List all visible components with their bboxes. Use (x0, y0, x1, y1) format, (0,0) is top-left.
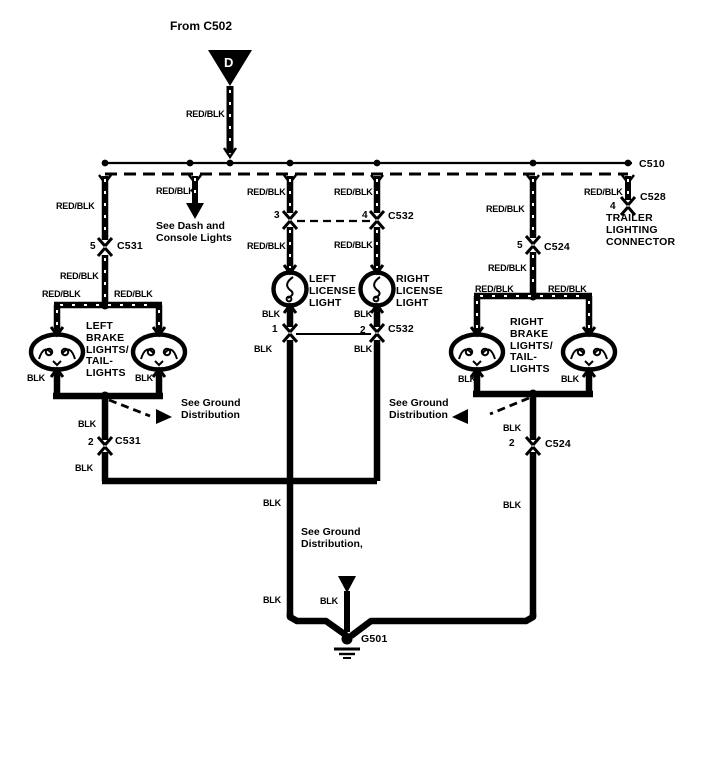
pin-c532-2: 2 (360, 325, 366, 337)
ground-feed-arrow-icon (338, 576, 356, 593)
left-license-bulb-icon (274, 265, 307, 313)
wire-label-blk: BLK (503, 500, 521, 510)
pin-c524-top: 5 (517, 240, 523, 252)
feed-wire-red-blk (224, 86, 236, 157)
wire-label-red-blk: RED/BLK (488, 263, 527, 273)
connector-label-g501: G501 (361, 633, 388, 645)
wire-label-red-blk: RED/BLK (247, 241, 286, 251)
wire-label-red-blk: RED/BLK (486, 204, 525, 214)
wire-label-red-blk: RED/BLK (334, 187, 373, 197)
wire-label-blk: BLK (27, 373, 45, 383)
component-label-left-license: LEFT LICENSE LIGHT (309, 274, 356, 309)
bus-solid-line (102, 160, 632, 167)
pin-c528: 4 (610, 201, 616, 213)
source-note: From C502 (170, 20, 232, 34)
wire-label-red-blk: RED/BLK (334, 240, 373, 250)
wire-label-red-blk: RED/BLK (60, 271, 99, 281)
connector-label-c532: C532 (388, 323, 414, 335)
right-license-bulb-icon (361, 265, 394, 313)
wire-label-red-blk: RED/BLK (56, 201, 95, 211)
connector-c532-pin4-icon (370, 211, 384, 229)
pin-c524-bottom: 2 (509, 438, 515, 450)
component-label-left-brake: LEFT BRAKE LIGHTS/ TAIL- LIGHTS (86, 321, 129, 380)
ground-ref-arrow-right-icon (452, 409, 468, 424)
note-see-dash-console: See Dash and Console Lights (156, 220, 232, 245)
connector-c532-pin3-icon (283, 211, 297, 229)
wire-label-red-blk: RED/BLK (114, 289, 153, 299)
wiring-diagram-canvas (0, 0, 725, 781)
ground-ref-dash-left (109, 400, 150, 416)
trailer-connector-circuit (621, 176, 635, 215)
wire-label-blk: BLK (78, 419, 96, 429)
connector-c524-top-icon (526, 236, 540, 254)
wire-label-red-blk: RED/BLK (156, 186, 195, 196)
ground-g501 (334, 576, 360, 658)
wire-label-blk: BLK (75, 463, 93, 473)
ground-terminal-icon (342, 634, 353, 645)
wire-label-red-blk: RED/BLK (247, 187, 286, 197)
wire-label-red-blk: RED/BLK (548, 284, 587, 294)
connector-label-c532: C532 (388, 210, 414, 222)
connector-label-c528: C528 (640, 191, 666, 203)
wire-label-blk: BLK (320, 596, 338, 606)
wire-label-red-blk: RED/BLK (584, 187, 623, 197)
component-label-trailer: TRAILER LIGHTING CONNECTOR (606, 213, 675, 248)
wire-label-blk: BLK (263, 595, 281, 605)
wire-label-blk: BLK (135, 373, 153, 383)
wiring-diagram: From C502 D RED/BLK RED/BLK RED/BLK RED/… (0, 0, 725, 781)
note-see-ground-right: See Ground Distribution (389, 397, 449, 422)
pin-c531-bottom: 2 (88, 437, 94, 449)
bus-drop-forks (99, 175, 634, 183)
connector-label-c524: C524 (544, 241, 570, 253)
pin-c531-top: 5 (90, 241, 96, 253)
wire-label-blk: BLK (262, 309, 280, 319)
pin-c532-1: 1 (272, 324, 278, 336)
note-see-ground-bottom: See Ground Distribution, (301, 526, 363, 551)
connector-label-c531: C531 (117, 240, 143, 252)
ground-ref-arrow-left-icon (156, 409, 172, 424)
wire-label-blk: BLK (354, 344, 372, 354)
connector-c531-top-icon (98, 238, 112, 256)
component-label-right-brake: RIGHT BRAKE LIGHTS/ TAIL- LIGHTS (510, 317, 553, 376)
wire-label-red-blk: RED/BLK (475, 284, 514, 294)
wire-label-blk: BLK (354, 309, 372, 319)
connector-label-c524: C524 (545, 438, 571, 450)
wire-label-red-blk: RED/BLK (186, 109, 225, 119)
wire-label-blk: BLK (254, 344, 272, 354)
ground-ref-dash-right (490, 398, 529, 414)
connector-label-c531: C531 (115, 435, 141, 447)
component-label-right-license: RIGHT LICENSE LIGHT (396, 274, 443, 309)
note-see-ground-left: See Ground Distribution (181, 397, 241, 422)
dash-console-arrow-icon (186, 176, 204, 219)
pin-c532-4: 4 (362, 210, 368, 222)
wire-label-red-blk: RED/BLK (42, 289, 81, 299)
wire-label-blk: BLK (503, 423, 521, 433)
wire-label-blk: BLK (458, 374, 476, 384)
pin-c532-3: 3 (274, 210, 280, 222)
wire-label-blk: BLK (263, 498, 281, 508)
connector-label-c510: C510 (639, 158, 665, 170)
feed-tag-letter: D (224, 56, 233, 71)
wire-label-blk: BLK (561, 374, 579, 384)
